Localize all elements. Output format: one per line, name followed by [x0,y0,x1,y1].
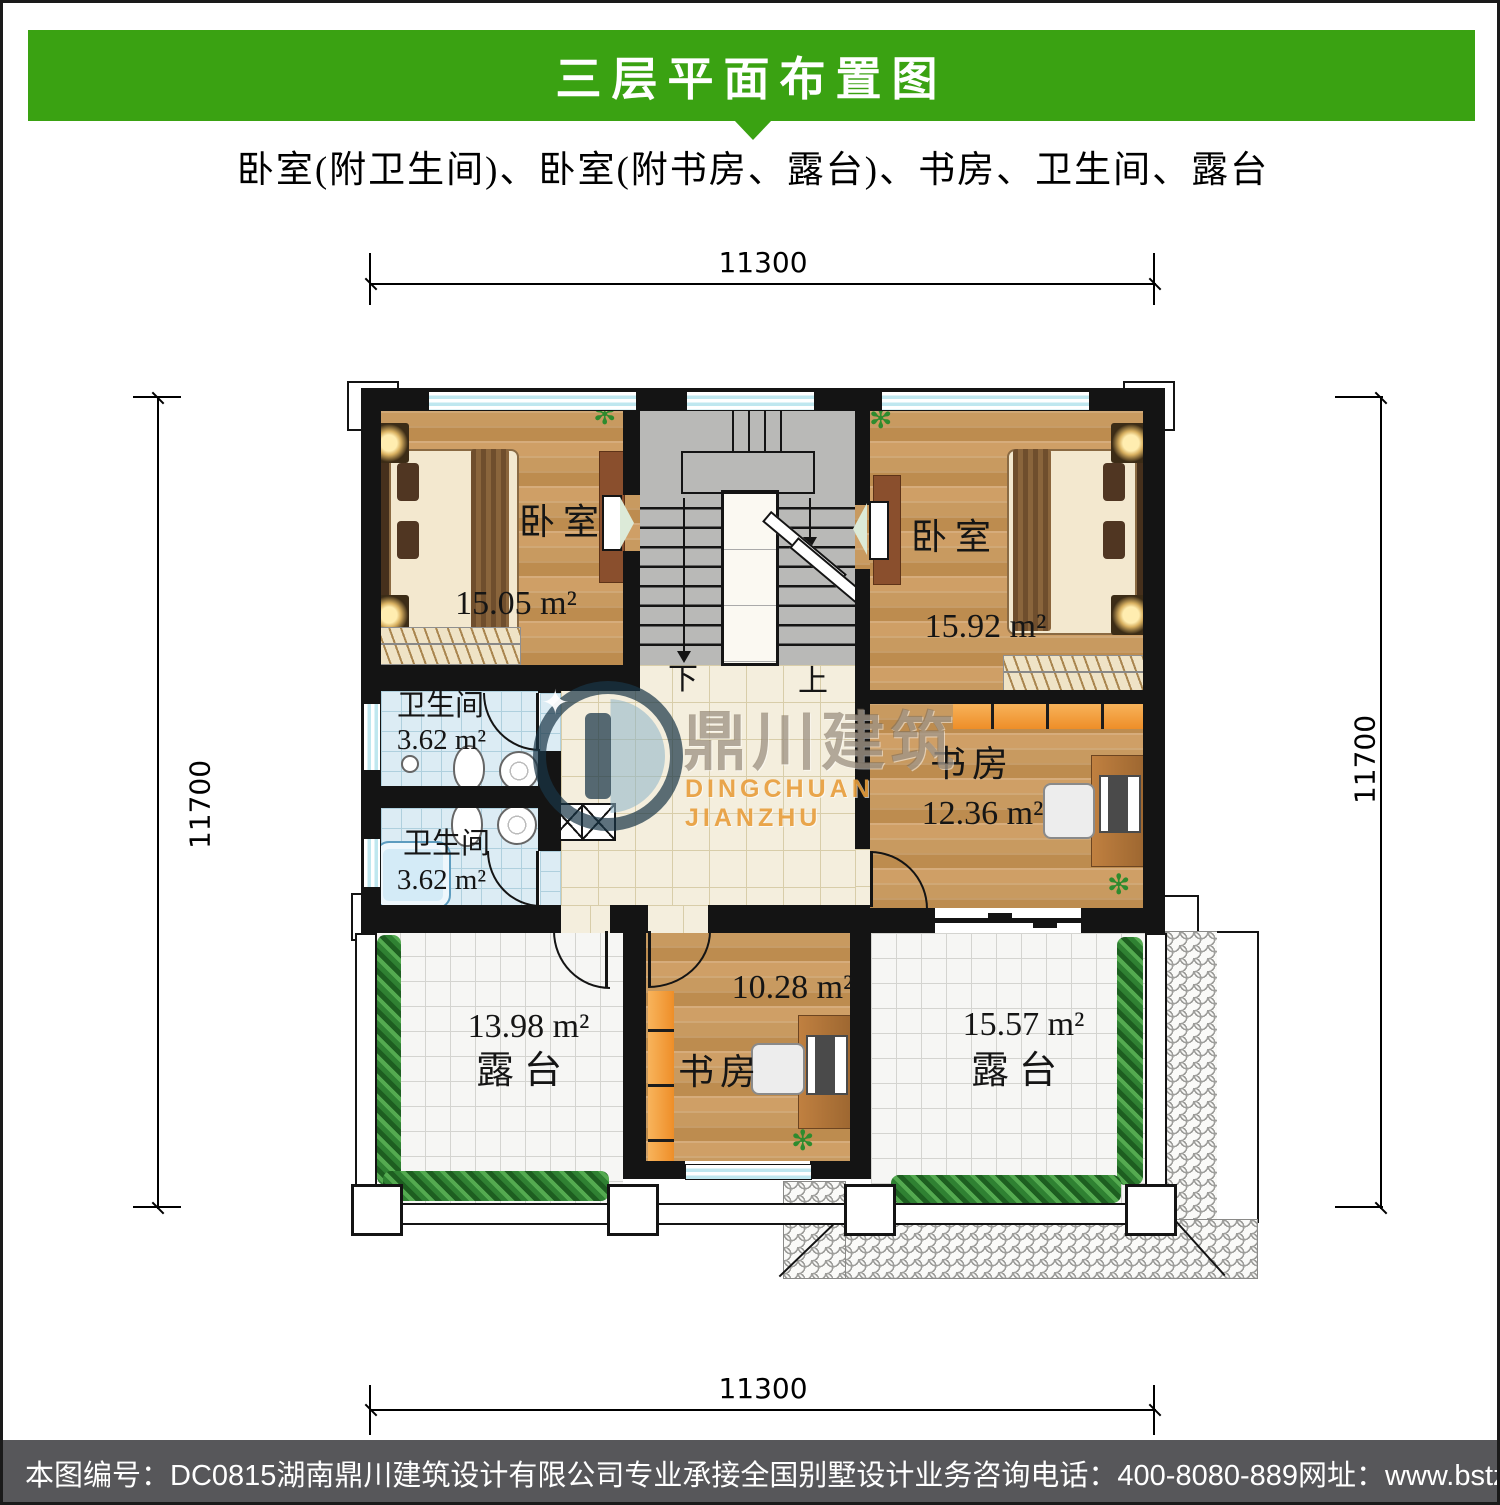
plant-icon: ✻ [791,1127,814,1155]
door-leaf [648,931,651,986]
wall [855,569,870,849]
hallway-floor [561,665,855,905]
wall [623,1161,685,1179]
hedge-plants [383,1171,609,1201]
stair-flight-outline [681,451,815,494]
room-area-label: 3.62 m² [379,865,504,897]
door-opening [646,905,708,933]
door-leaf [605,931,608,987]
wardrobe [379,627,521,665]
stair-railing-line [764,411,766,453]
footer-bar: 本图编号：DC0815 湖南鼎川建筑设计有限公司专业承接全国别墅设计业务 咨询电… [3,1440,1500,1505]
stair-direction-line [683,498,685,656]
stair-railing-line [748,411,750,453]
dim-extension-line [1335,1206,1383,1208]
computer-monitor [1099,775,1141,833]
dim-extension-line [369,253,371,305]
room-area-label: 15.92 m² [898,608,1073,645]
room-label: 露台 [459,1051,589,1093]
computer-monitor [806,1035,848,1095]
stair-railing-line [732,411,734,453]
wall [538,751,561,851]
floor-plan-page: 三层平面布置图 卧室(附卫生间)、卧室(附书房、露台)、书房、卫生间、露台 [0,0,1500,1505]
room-label: 卧室 [900,518,1010,558]
room-label: 卫生间 [389,829,504,861]
stair-railing-line [780,411,782,453]
stair-treads [640,490,721,660]
dim-value-bottom: 11300 [663,1372,863,1405]
roof-tiles [844,1219,1258,1279]
dim-value-left: 11700 [184,760,217,850]
sink [499,751,539,791]
room-label: 卧室 [508,503,618,543]
terrace-column [607,1184,659,1236]
room-label: 卫生间 [383,691,498,723]
room-label: 书房 [665,1053,775,1093]
roof-tiles [1165,931,1219,1223]
roof-eave [1217,931,1259,1223]
floor-plan-drawing: ✻ ✻ ✻ ✻ [3,3,1500,1505]
drawing-number: 本图编号：DC0815 [25,1452,276,1494]
hedge-plants [891,1175,1121,1203]
pillow [397,463,419,501]
website-url: 网址：www.bstzcs.com [1298,1452,1500,1494]
wall [810,1161,871,1179]
pillow [1103,463,1125,501]
terrace-column [351,1184,403,1236]
door-leaf [870,851,873,907]
phone-number: 咨询电话：400-8080-889 [972,1452,1298,1494]
room-area-label: 13.98 m² [441,1008,616,1045]
door-opening [540,693,561,751]
terrace-column [844,1184,896,1236]
shower-head [401,755,419,773]
room-area-label: 15.57 m² [936,1006,1111,1043]
door-leaf [536,851,539,905]
stairs-up-label: 上 [789,665,837,698]
company-statement: 湖南鼎川建筑设计有限公司专业承接全国别墅设计业务 [276,1452,972,1494]
shaft-box [581,803,616,841]
dim-value-top: 11300 [663,246,863,279]
dim-line [157,397,159,1209]
wall [708,905,870,933]
terrace-railing [1145,933,1167,1209]
window [428,391,637,411]
room-area-label: 3.62 m² [379,725,504,757]
pillow [397,521,419,559]
wall [855,411,870,505]
door-leaf [536,693,539,750]
sliding-door-line [988,913,1012,918]
wardrobe [1003,655,1145,692]
wall [361,905,553,933]
room-label: 露台 [954,1051,1084,1093]
door-swing-icon [853,503,867,555]
pillow [1103,521,1125,559]
plant-icon: ✻ [1107,871,1130,899]
wall [538,665,561,693]
room-area-label: 15.05 m² [431,585,601,622]
window [881,391,1090,411]
dim-extension-line [1335,396,1383,398]
window [685,1164,812,1180]
wall [623,931,646,1179]
dim-value-right: 11700 [1349,715,1382,805]
stairs-down-label: 下 [659,663,707,696]
wall [623,411,640,495]
terrace-railing [355,933,377,1209]
door-opening [855,849,870,907]
dim-line [370,283,1156,285]
sliding-door-line [935,918,1081,923]
door-opening [540,851,561,905]
hedge-plants [377,935,401,1185]
wall [610,905,648,933]
arrow-down-icon [677,651,691,663]
dim-extension-line [1153,253,1155,305]
wall [870,690,1165,704]
door-swing-icon [620,497,634,549]
wall [1143,388,1165,933]
window [686,391,815,411]
hedge-plants [1117,937,1143,1185]
bed-runner [1013,449,1051,631]
room-label: 书房 [918,745,1026,785]
wall [870,908,935,933]
terrace-column [1125,1184,1177,1236]
sliding-door-line [1033,923,1057,928]
door-opening [553,905,610,933]
dim-line [370,1409,1156,1411]
bookshelf [953,703,1145,729]
room-area-label: 12.36 m² [895,795,1070,832]
wall [1081,908,1165,933]
wall [623,551,640,667]
wall [361,786,538,808]
door-leaf [869,501,889,560]
room-area-label: 10.28 m² [705,969,880,1006]
terrace-railing [395,1203,1135,1225]
wall [361,665,640,691]
